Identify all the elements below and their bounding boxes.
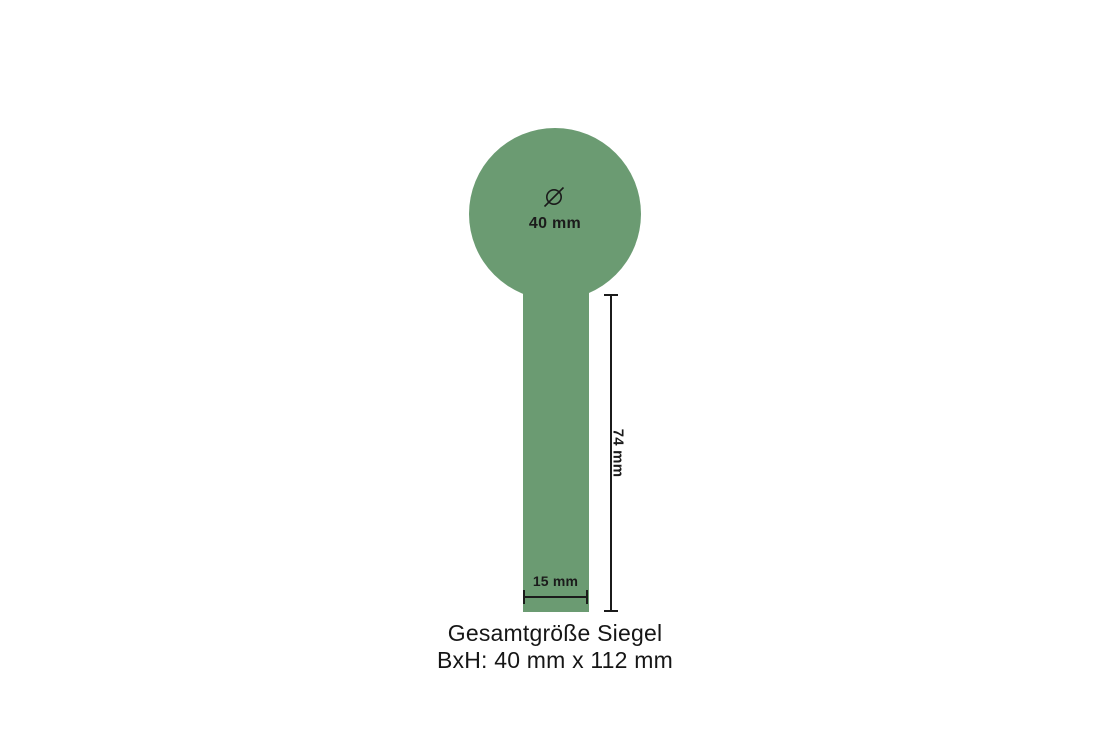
seal-stem-shape [523, 250, 589, 612]
diameter-icon [542, 185, 566, 209]
stem-width-dimension: 15 mm [523, 590, 588, 604]
caption-dimensions: BxH: 40 mm x 112 mm [0, 647, 1110, 674]
caption: Gesamtgröße Siegel BxH: 40 mm x 112 mm [0, 620, 1110, 674]
stem-height-dimension: 74 mm [604, 294, 618, 612]
caption-title: Gesamtgröße Siegel [0, 620, 1110, 647]
diameter-value-label: 40 mm [469, 215, 641, 233]
seal-dimension-diagram: 40 mm 15 mm 74 mm Gesamtgröße Siegel BxH… [0, 0, 1110, 740]
stem-height-value-label: 74 mm [610, 429, 627, 478]
dimension-tick-bottom [604, 610, 618, 612]
dimension-line-horizontal [523, 596, 588, 598]
dimension-tick-right [586, 590, 588, 604]
dimension-tick-left [523, 590, 525, 604]
stem-width-value-label: 15 mm [523, 573, 588, 589]
